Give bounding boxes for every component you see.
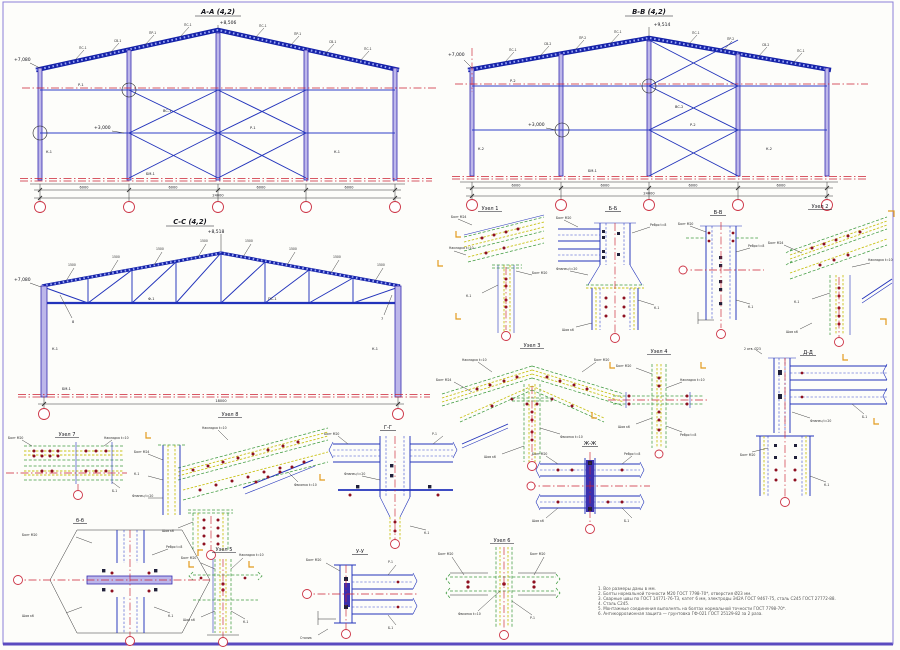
section-mark [610, 362, 615, 368]
section-cc: С-С (4,2) +8,518 +7,080 1500 1500 1500 1… [14, 218, 430, 420]
svg-text:СВ-1: СВ-1 [329, 40, 336, 44]
x-braces [649, 40, 738, 176]
section-mark [592, 412, 597, 418]
column [38, 68, 42, 180]
girt-label: Р-2 [510, 79, 516, 83]
section-aa: А-А (4,2) +8,506 +7,080 +3,000 Р-1 [14, 8, 438, 213]
svg-text:Болт М20: Болт М20 [22, 533, 37, 537]
svg-text:1500: 1500 [377, 263, 385, 267]
detail-title: Узел 4 [651, 349, 668, 355]
detail-uu: У-У Болт М20 Р-1 Б-1 Столик [300, 549, 418, 640]
detail-zh: Ж-Ж Болт М20 Ребро t=8 Шов к6 Б-1 [527, 441, 650, 534]
column [647, 41, 651, 176]
axis-circle [207, 551, 216, 560]
detail-title: В-В [714, 210, 723, 216]
svg-text:Ребро t=8: Ребро t=8 [166, 545, 182, 549]
column [395, 286, 401, 397]
axis-circle [586, 525, 595, 534]
svg-text:Накладка t=10: Накладка t=10 [868, 258, 893, 262]
detail-title: Узел 7 [59, 432, 76, 438]
svg-text:К-1: К-1 [243, 620, 248, 624]
axis-circle [342, 630, 351, 639]
svg-text:Шов к6: Шов к6 [532, 519, 544, 523]
bolt-group [33, 450, 108, 473]
axis-circle [219, 638, 228, 647]
elev-leader [30, 63, 40, 68]
svg-text:Ребро t=8: Ребро t=8 [680, 433, 696, 437]
detail-gg: Г-Г Болт М20 Р-1 Фланец t=20 К-1 [324, 425, 457, 549]
svg-text:ПР-2: ПР-2 [727, 37, 734, 41]
column [216, 33, 220, 180]
svg-text:Болт М24: Болт М24 [768, 241, 783, 245]
svg-text:6000: 6000 [512, 184, 521, 188]
svg-text:Р-1: Р-1 [432, 432, 437, 436]
base-label: БМ-1 [588, 169, 597, 173]
bolt-group [811, 231, 862, 267]
section-mark [249, 561, 254, 567]
svg-text:6000: 6000 [257, 186, 266, 190]
bolt-group [602, 230, 620, 259]
svg-text:Болт М20: Болт М20 [438, 552, 453, 556]
svg-text:Б-1: Б-1 [388, 626, 393, 630]
dimension-chain: 6000 6000 6000 6000 24000 [466, 184, 833, 199]
svg-text:Фланец t=20: Фланец t=20 [556, 267, 577, 271]
svg-text:ПС-1: ПС-1 [614, 30, 622, 34]
section-bb-title: В-В (4,2) [632, 8, 666, 16]
svg-text:ПС-1: ПС-1 [692, 31, 700, 35]
detail-uz8: Узел 8 [132, 412, 328, 560]
svg-text:Столик: Столик [300, 636, 312, 640]
column [127, 50, 131, 180]
svg-text:1500: 1500 [200, 239, 208, 243]
svg-text:Ребро t=8: Ребро t=8 [624, 452, 640, 456]
axis-circle [500, 631, 509, 640]
axis-circle [303, 590, 312, 599]
section-aa-title: А-А (4,2) [200, 8, 235, 16]
column [559, 54, 563, 176]
svg-text:ПС-1: ПС-1 [259, 24, 267, 28]
svg-text:Б-1: Б-1 [112, 489, 117, 493]
svg-text:Б-1: Б-1 [862, 415, 867, 419]
svg-text:Шов к6: Шов к6 [618, 425, 630, 429]
eave-elevation: +7,000 [448, 52, 465, 58]
detail-title: Ж-Ж [584, 441, 597, 447]
column-label: К-1 [46, 150, 52, 154]
note-line: 6. Антикоррозионная защита — грунтовка Г… [598, 611, 763, 616]
svg-text:Б-1: Б-1 [624, 519, 629, 523]
column-label: К-1 [372, 347, 378, 351]
section-mark [456, 313, 461, 319]
axis-circle [74, 491, 83, 500]
axis-circle [679, 266, 687, 274]
detail-uz2: Узел 2 Болт М24 К-1 Накладка t=10 Шов к6 [768, 204, 894, 347]
svg-text:Шов к6: Шов к6 [562, 328, 574, 332]
svg-text:1500: 1500 [68, 263, 76, 267]
bolt-group [481, 228, 520, 255]
purlin-label: ПС-1 [268, 297, 277, 301]
detail-title: Узел 1 [482, 206, 499, 212]
detail-title: Д-Д [803, 350, 813, 356]
brace-label: ВС-1 [163, 109, 171, 113]
svg-text:Болт М20: Болт М20 [8, 436, 23, 440]
svg-text:Болт М20: Болт М20 [181, 556, 196, 560]
svg-text:Ребро t=8: Ребро t=8 [748, 244, 764, 248]
axis-circle [391, 540, 400, 549]
detail-uz6: Узел 6 Болт М20 Болт М20 Фасонка t=10 Р-… [438, 538, 560, 640]
svg-text:К-1: К-1 [824, 483, 829, 487]
svg-text:ПС-1: ПС-1 [364, 47, 372, 51]
detail-uz1: Узел 1 Болт М24 Накладка t=10 К-1 Болт М… [449, 206, 547, 341]
svg-text:6000: 6000 [777, 184, 786, 188]
svg-text:Болт М20: Болт М20 [530, 552, 545, 556]
svg-text:Фасонка t=10: Фасонка t=10 [458, 612, 481, 616]
svg-text:Болт М20: Болт М20 [678, 222, 693, 226]
detail-vv: В-В Болт М20 Ребро t=8 К-1 [678, 210, 764, 339]
section-mark [189, 561, 194, 567]
svg-text:К-1: К-1 [168, 614, 173, 618]
svg-text:Болт М20: Болт М20 [556, 216, 571, 220]
svg-text:ПР-1: ПР-1 [149, 31, 156, 35]
svg-text:СВ-1: СВ-1 [114, 39, 121, 43]
pos-leader [384, 295, 392, 315]
field-section-marks [438, 260, 879, 424]
border-rect [3, 2, 893, 644]
svg-text:СВ-2: СВ-2 [762, 43, 769, 47]
svg-text:1500: 1500 [112, 255, 120, 259]
svg-text:1500: 1500 [156, 247, 164, 251]
svg-text:1500: 1500 [289, 247, 297, 251]
sheet-border [3, 2, 893, 644]
svg-text:Болт М20: Болт М20 [532, 271, 547, 275]
axis-circle [502, 332, 511, 341]
svg-text:К-1: К-1 [794, 300, 799, 304]
detail-title: Узел 5 [216, 547, 233, 553]
girt-label: Р-1 [78, 83, 84, 87]
bolt-group [778, 370, 803, 399]
detail-title: Б-Б [609, 206, 618, 212]
svg-text:Накладка t=10: Накладка t=10 [449, 246, 474, 250]
svg-text:Шов к6: Шов к6 [786, 330, 798, 334]
pos-number: 7 [381, 317, 383, 321]
svg-text:Болт М20: Болт М20 [594, 358, 609, 362]
svg-text:СВ-2: СВ-2 [544, 42, 551, 46]
svg-text:Накладка t=10: Накладка t=10 [104, 436, 129, 440]
svg-text:Накладка t=10: Накладка t=10 [680, 378, 705, 382]
eave-elevation: +7,080 [14, 57, 31, 63]
elev-leader [464, 60, 472, 68]
svg-text:6000: 6000 [689, 184, 698, 188]
svg-text:Фланец t=20: Фланец t=20 [344, 472, 365, 476]
column [393, 68, 397, 180]
svg-text:Болт М20: Болт М20 [740, 453, 755, 457]
svg-text:К-1: К-1 [748, 305, 753, 309]
svg-text:6000: 6000 [80, 186, 89, 190]
dimension-chain: 18000 [38, 399, 404, 406]
section-mark [146, 432, 151, 438]
svg-text:К-1: К-1 [466, 294, 471, 298]
column-label: К-2 [478, 147, 484, 151]
section-mark [880, 319, 886, 325]
column-label: К-1 [334, 150, 340, 154]
svg-text:ПС-1: ПС-1 [79, 46, 87, 50]
svg-text:6000: 6000 [601, 184, 610, 188]
detail-uz3: Узел 3 Болт М24 Накладка t=10 Болт [436, 343, 624, 471]
base-label: БМ-1 [146, 172, 155, 176]
column [41, 286, 47, 397]
base-label: БМ-1 [62, 387, 71, 391]
mid-elevation: +3,000 [528, 122, 545, 128]
axis-circle [527, 482, 535, 490]
detail-title: Узел 6 [494, 538, 511, 544]
column-label: К-2 [766, 147, 772, 151]
eave-elevation: +7,080 [14, 277, 31, 283]
bolt-group [774, 444, 797, 482]
svg-text:ПР-2: ПР-2 [579, 36, 586, 40]
svg-text:Шов к6: Шов к6 [162, 529, 174, 533]
detail-uz5: Узел 5 Болт М20 Накладка t=10 Шов к6 К-1 [181, 547, 264, 647]
svg-text:Болт М20: Болт М20 [616, 364, 631, 368]
detail-bb2: б-б Болт М20 Шов к6 Ребро t=8 К-1 [14, 518, 211, 646]
svg-text:ПС-1: ПС-1 [797, 49, 805, 53]
svg-text:6000: 6000 [345, 186, 354, 190]
girt-label: Р-2 [690, 123, 696, 127]
svg-text:Накладка t=10: Накладка t=10 [202, 426, 227, 430]
svg-text:6000: 6000 [169, 186, 178, 190]
svg-text:Болт М24: Болт М24 [451, 215, 466, 219]
column [736, 54, 740, 176]
section-mark [320, 474, 325, 480]
detail-title: Г-Г [384, 425, 392, 431]
detail-title: У-У [356, 549, 364, 555]
elev-leader [30, 283, 41, 287]
svg-text:Фасонка t=10: Фасонка t=10 [560, 435, 583, 439]
girt-label: Р-1 [250, 126, 256, 130]
svg-text:Ребро t=8: Ребро t=8 [650, 223, 666, 227]
svg-text:Шов к6: Шов к6 [484, 455, 496, 459]
cad-canvas: А-А (4,2) +8,506 +7,080 +3,000 Р-1 [0, 0, 900, 650]
drawing-sheet: А-А (4,2) +8,506 +7,080 +3,000 Р-1 [0, 0, 900, 650]
truss-label: Ф-1 [148, 297, 155, 301]
detail-uz4: Узел 4 Болт М20 Накладка t=10 Шов к6 Реб… [608, 349, 708, 458]
svg-text:Накладка t=10: Накладка t=10 [239, 553, 264, 557]
svg-text:ПС-1: ПС-1 [509, 48, 517, 52]
apex-elevation: +8,506 [220, 20, 237, 26]
svg-text:Шов к6: Шов к6 [22, 614, 34, 618]
mid-elevation: +3,000 [94, 125, 111, 131]
svg-text:2 отв. Ø23: 2 отв. Ø23 [744, 346, 761, 351]
detail-title: Узел 8 [222, 412, 239, 418]
detail-dd: Д-Д 2 отв. Ø23 Фланец t=20 Б-1 К-1 Болт … [740, 346, 887, 507]
section-mark [456, 231, 461, 237]
truss-web-members [46, 253, 396, 303]
svg-text:Накладка t=10: Накладка t=10 [462, 358, 487, 362]
detail-uz7: Узел 7 Болт М20 Накладка t=10 Б-1 [6, 432, 129, 500]
notes-block: 1. Все размеры даны в мм. 2. Болты норма… [598, 586, 836, 616]
svg-text:Фланец t=20: Фланец t=20 [132, 494, 153, 498]
svg-text:18000: 18000 [215, 399, 226, 403]
section-bb: В-В (4,2) +9,514 +7,000 +3,000 Р-2 Р-2 К… [448, 8, 868, 211]
section-mark [198, 550, 203, 556]
axis-circle [717, 330, 726, 339]
break-mark [883, 364, 887, 404]
section-cc-title: С-С (4,2) [173, 218, 206, 226]
svg-text:Болт М20: Болт М20 [306, 558, 321, 562]
svg-text:К-1: К-1 [134, 472, 139, 476]
svg-text:ПР-1: ПР-1 [294, 32, 301, 36]
column-label: К-1 [52, 347, 58, 351]
svg-text:Фасонка t=10: Фасонка t=10 [294, 483, 317, 487]
axis-circle [835, 338, 844, 347]
bolt-group [466, 580, 535, 588]
pos-leader [60, 295, 72, 318]
break-mark [446, 574, 560, 598]
svg-text:Р-1: Р-1 [388, 560, 393, 564]
break-mark [413, 573, 417, 614]
svg-text:Р-1: Р-1 [530, 616, 535, 620]
svg-text:Болт М24: Болт М24 [436, 378, 451, 382]
svg-text:ПС-1: ПС-1 [184, 23, 192, 27]
axis-circle [781, 498, 790, 507]
apex-elevation: +8,518 [208, 229, 225, 235]
dimension-chain: 6000 6000 6000 6000 24000 [34, 186, 401, 201]
axis-circle [655, 450, 663, 458]
svg-text:Шов к6: Шов к6 [183, 618, 195, 622]
svg-text:1500: 1500 [333, 255, 341, 259]
axis-circle [126, 637, 135, 646]
web-plate [344, 583, 350, 607]
svg-text:Фланец t=20: Фланец t=20 [810, 419, 831, 423]
column [304, 50, 308, 180]
detail-title: б-б [76, 518, 84, 524]
svg-text:К-1: К-1 [654, 306, 659, 310]
svg-text:1500: 1500 [245, 239, 253, 243]
svg-text:Болт М24: Болт М24 [134, 450, 149, 454]
axis-circle [528, 462, 537, 471]
pos-number: 8 [72, 320, 74, 324]
axis-circle [14, 576, 23, 585]
svg-text:К-1: К-1 [424, 531, 429, 535]
detail-title: Узел 3 [524, 343, 541, 349]
note-line: 3. Сварные швы по ГОСТ 14771-76-Т3, кате… [598, 596, 836, 601]
detail-bb: Б-Б Болт М20 Фланец t=20 Ребро t=8 К-1 Ш… [556, 206, 666, 343]
apex-elevation: +9,514 [654, 22, 671, 28]
brace-label: ВС-2 [675, 105, 683, 109]
detail-title: Узел 2 [812, 204, 829, 210]
section-mark [701, 362, 706, 368]
svg-text:Болт М20: Болт М20 [532, 452, 547, 456]
axis-circle [611, 334, 620, 343]
